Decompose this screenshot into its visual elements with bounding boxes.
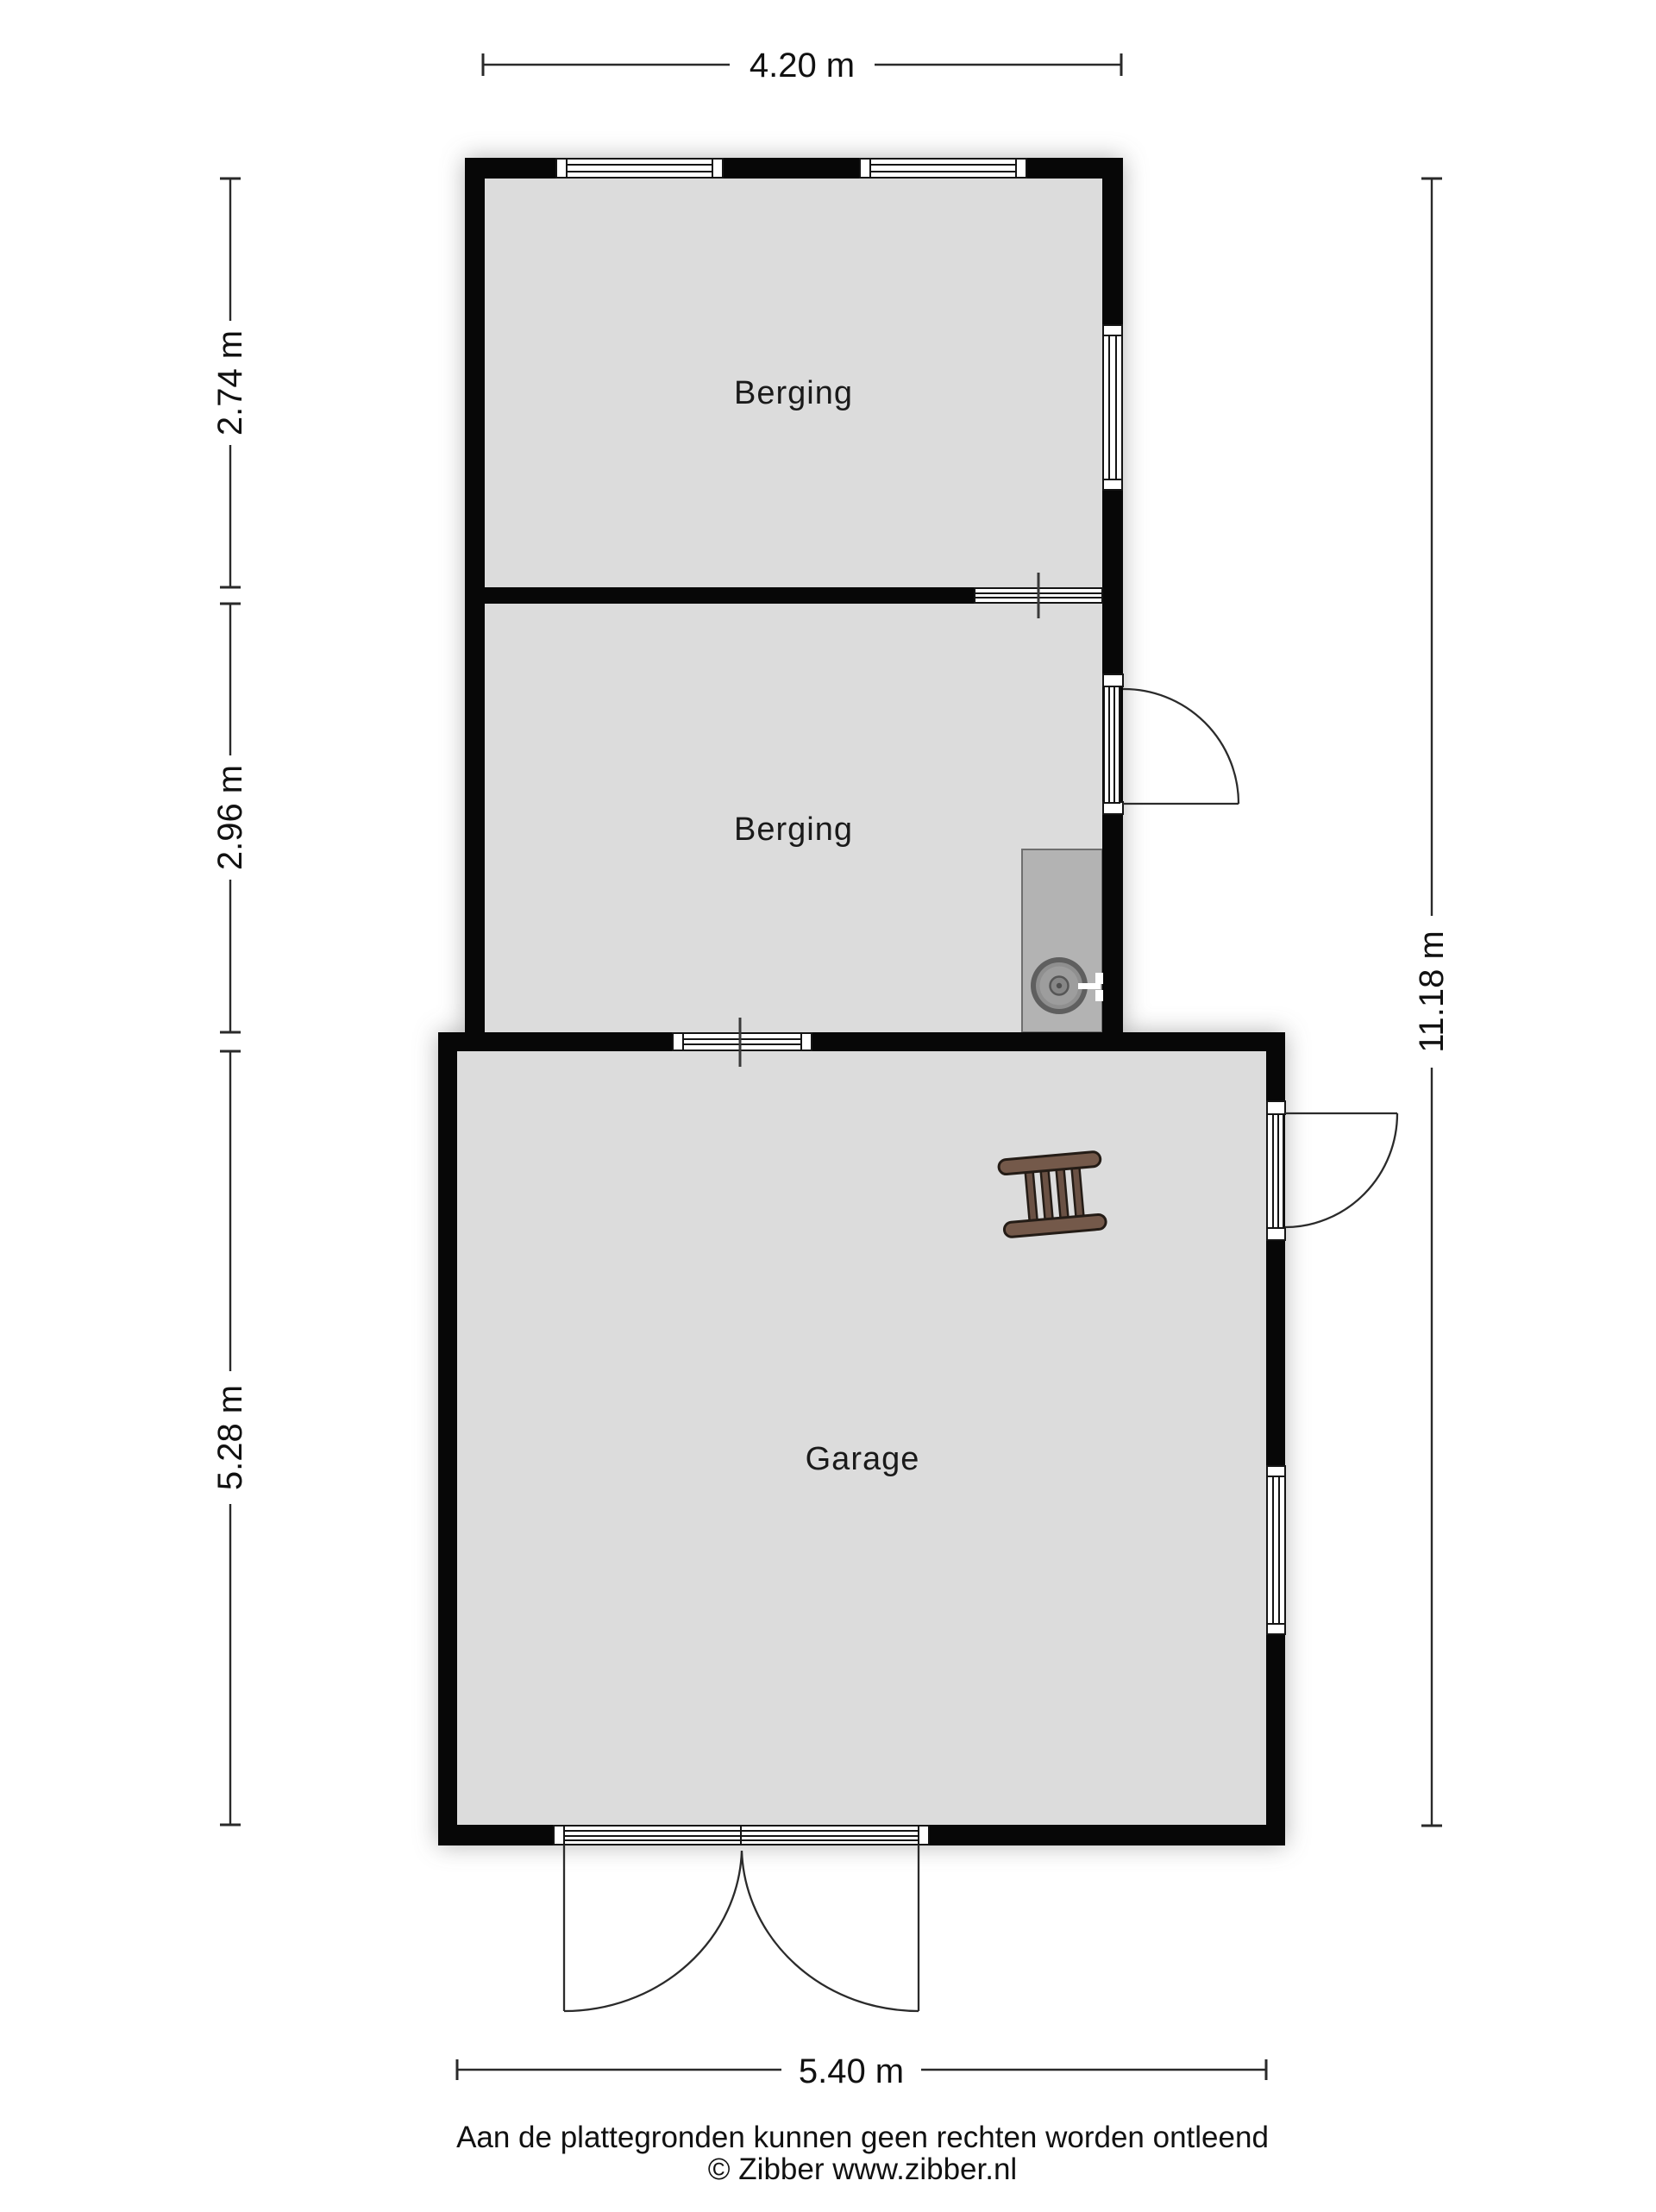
floor-plan: Berging Berging Garage 4.20 m 2.74 m 2.9… (0, 0, 1656, 2208)
room-label-berging-top: Berging (734, 375, 853, 411)
sink-faucet-handle (1095, 990, 1103, 1001)
wall-berging-right (1102, 158, 1123, 1032)
dimension-left-top: 2.74 m (211, 179, 249, 587)
dimension-label: 2.74 m (211, 330, 249, 436)
sink-faucet (1078, 983, 1101, 989)
wall-berging-left (465, 158, 485, 1032)
sink-drain-dot (1057, 983, 1062, 988)
opening-icon (554, 1826, 929, 1845)
dimension-right: 11.18 m (1413, 179, 1451, 1826)
room-floor-garage (457, 1051, 1266, 1825)
dimension-label: 5.40 m (799, 2052, 904, 2090)
footer-disclaimer: Aan de plattegronden kunnen geen rechten… (456, 2121, 1269, 2154)
dimension-bottom: 5.40 m (457, 2052, 1266, 2090)
floor-plan-page: Berging Berging Garage 4.20 m 2.74 m 2.9… (0, 0, 1656, 2208)
wall-garage-left (438, 1032, 457, 1845)
window-icon (556, 159, 723, 178)
door-swing-icon (1103, 674, 1239, 814)
dimension-label: 4.20 m (750, 47, 855, 85)
sink-faucet-handle (1095, 973, 1103, 984)
wall-garage-top (438, 1032, 1285, 1051)
door-swing-icon (564, 1845, 919, 2011)
dimension-label: 11.18 m (1413, 931, 1451, 1053)
window-icon (1103, 325, 1122, 490)
dimension-left-middle: 2.96 m (211, 604, 249, 1032)
room-label-garage: Garage (806, 1441, 920, 1477)
dimension-label: 5.28 m (211, 1385, 249, 1490)
window-icon (860, 159, 1026, 178)
room-label-berging-middle: Berging (734, 811, 853, 848)
dimension-label: 2.96 m (211, 765, 249, 870)
dimension-top: 4.20 m (483, 47, 1121, 85)
building (438, 158, 1285, 1845)
footer-copyright: © Zibber www.zibber.nl (708, 2152, 1017, 2186)
door-swing-icon (1267, 1101, 1397, 1240)
floors (457, 179, 1266, 1825)
window-icon (1267, 1466, 1285, 1634)
dimension-left-bottom: 5.28 m (211, 1051, 249, 1825)
